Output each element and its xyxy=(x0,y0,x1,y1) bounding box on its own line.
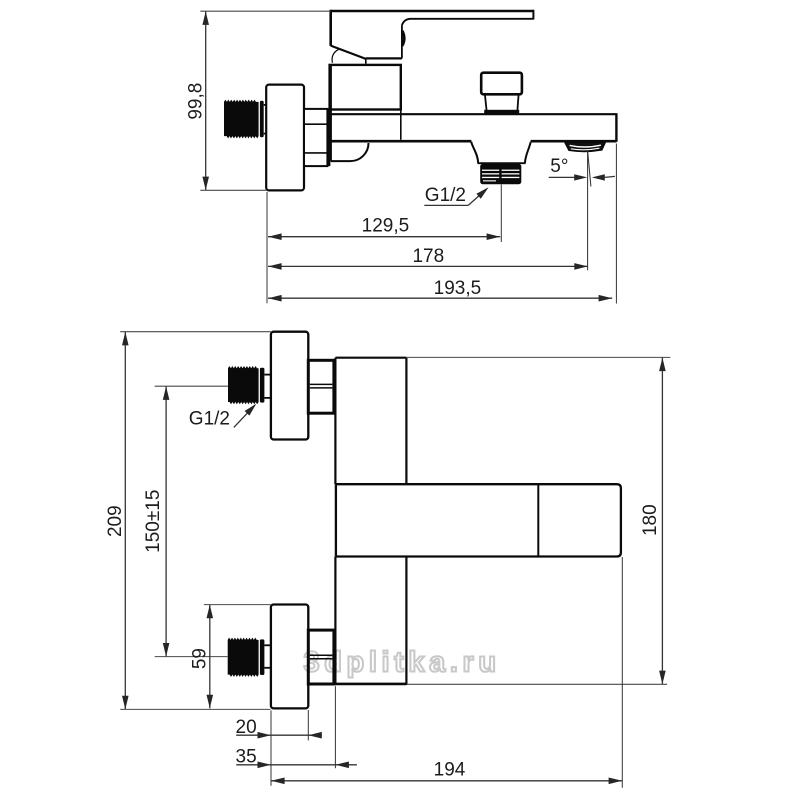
svg-text:150±15: 150±15 xyxy=(143,490,164,553)
svg-text:129,5: 129,5 xyxy=(362,216,410,237)
svg-text:35: 35 xyxy=(236,747,257,768)
svg-text:194: 194 xyxy=(434,760,466,781)
svg-text:99,8: 99,8 xyxy=(186,83,207,120)
svg-text:G1/2: G1/2 xyxy=(425,185,466,206)
svg-text:59: 59 xyxy=(189,648,210,669)
svg-text:178: 178 xyxy=(412,246,444,267)
svg-text:G1/2: G1/2 xyxy=(189,408,230,429)
svg-text:209: 209 xyxy=(105,505,126,537)
svg-text:20: 20 xyxy=(236,717,257,738)
svg-text:5°: 5° xyxy=(550,156,568,177)
svg-text:193,5: 193,5 xyxy=(434,278,482,299)
svg-text:180: 180 xyxy=(640,504,661,536)
